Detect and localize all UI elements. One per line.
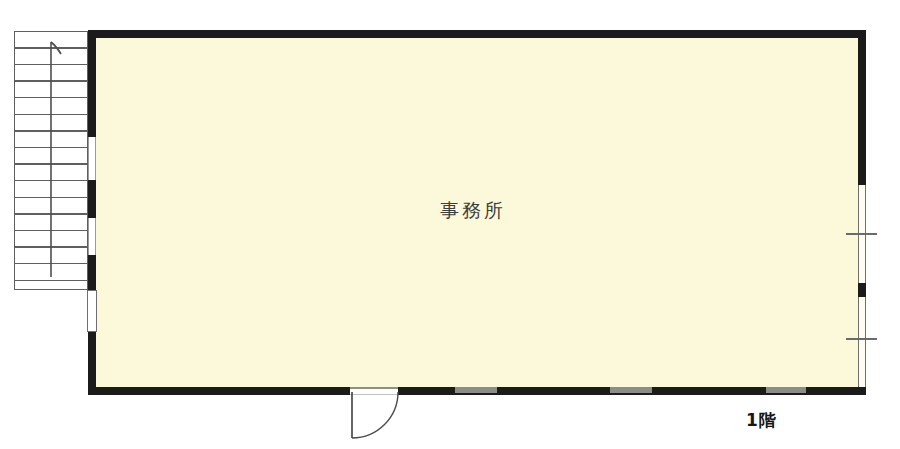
floor-label: 1階 <box>746 409 777 432</box>
bottom-wall-window-3-icon <box>766 387 806 393</box>
window-center-tick-1 <box>846 233 877 235</box>
staircase-icon <box>14 31 88 290</box>
bottom-wall-window-1-icon <box>455 387 497 393</box>
left-wall-opening-2 <box>88 218 96 255</box>
left-wall-opening-1 <box>88 137 96 180</box>
bottom-wall-window-2-icon <box>610 387 652 393</box>
entrance-door-opening <box>350 387 398 395</box>
right-wall-window-2-icon <box>858 297 866 387</box>
floor-plan-canvas: 事務所 1階 <box>0 0 900 449</box>
left-wall-window-icon <box>87 290 97 332</box>
window-center-tick-2 <box>846 338 877 340</box>
room-label: 事務所 <box>440 198 506 224</box>
office-room: 事務所 <box>88 30 866 395</box>
